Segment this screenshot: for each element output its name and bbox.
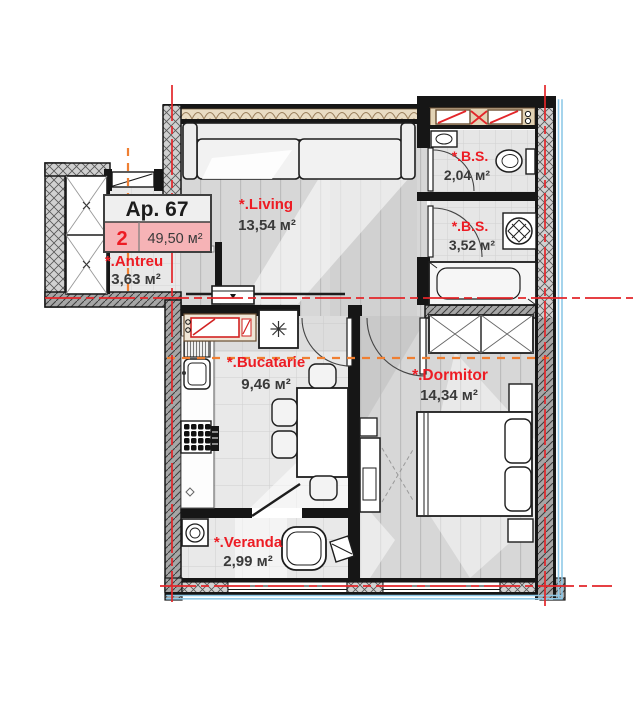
veranda-window (228, 582, 347, 593)
sofa (183, 123, 415, 179)
living-area-label: 13,54 м² (238, 217, 296, 234)
veranda-wall-a (181, 508, 252, 518)
bathroom2-door-leaf (428, 206, 433, 257)
apartment-number-label: Ap. 67 (125, 198, 188, 221)
dining-table (297, 388, 348, 477)
bathroom1-area-label: 2,04 м² (444, 167, 490, 183)
entry-jamb-right (154, 169, 163, 191)
apartment-label-box: Ap. 67 2 49,50 м² (104, 195, 211, 252)
vent-pipe-2 (525, 118, 530, 123)
vent-pipe-1 (525, 111, 530, 116)
bedroom-window (383, 582, 500, 593)
snowflake-icon (271, 321, 287, 337)
balcony-left-wall (45, 163, 65, 307)
bottom-wall-left-cap (165, 578, 182, 600)
laundry-basin (282, 527, 326, 570)
glazing-line-right (559, 100, 563, 598)
insulation-band (181, 109, 421, 120)
chair-left-2 (272, 431, 297, 458)
nightstand-top (509, 384, 532, 412)
living-name-label: *.Living (239, 196, 293, 213)
floor-plan-drawing: Ap. 67 2 49,50 м² *.Antreu 3,63 м² *.Liv… (0, 0, 635, 704)
bedroom-name-label: *.Dormitor (412, 367, 488, 384)
bathroom1-name-label: *.B.S. (452, 148, 489, 164)
veranda-name-label: *.Veranda (214, 534, 283, 551)
vent-band-bottom-line (430, 125, 535, 129)
total-area-label: 49,50 м² (147, 231, 202, 247)
fridge-icon (184, 341, 210, 357)
wardrobe-balcony (66, 176, 107, 294)
nightstand-bottom (508, 519, 533, 542)
bedroom-area-label: 14,34 м² (420, 387, 478, 404)
chair-bottom (310, 476, 337, 500)
tv-unit-top (360, 418, 377, 436)
kitchen-area-label: 9,46 м² (241, 376, 290, 393)
window-pier-2 (347, 582, 383, 593)
antreu-area-label: 3,63 м² (111, 271, 160, 288)
pillow-2 (505, 467, 531, 511)
pillow-1 (505, 419, 531, 463)
rooms-count-badge: 2 (116, 228, 127, 250)
right-wall-outer-line (553, 96, 556, 600)
kitchen-name-label: *.Bucatarie (227, 354, 305, 371)
bathroom2-area-label: 3,52 м² (449, 237, 495, 253)
bathroom1-door-leaf (428, 148, 433, 191)
bath-top-wall (417, 96, 555, 108)
bedroom-door-leaf (420, 318, 426, 374)
glazing-line-bottom (167, 596, 562, 599)
antreu-name-label: *.Antreu (105, 253, 163, 270)
window-pier-1 (182, 582, 228, 593)
bath-left-wall-a (417, 108, 430, 148)
balcony-top-wall (45, 163, 110, 176)
chair-top (309, 364, 336, 388)
veranda-wall-b (302, 508, 348, 518)
bath-divider-wall (417, 192, 535, 201)
chair-left-1 (272, 399, 297, 426)
floor-plan-canvas: Ap. 67 2 49,50 м² *.Antreu 3,63 м² *.Liv… (0, 0, 635, 704)
veranda-area-label: 2,99 м² (223, 553, 272, 570)
toilet-tank (526, 149, 535, 174)
left-exterior-wall (165, 300, 181, 592)
window-pier-3 (500, 582, 540, 593)
bathroom2-name-label: *.B.S. (452, 218, 489, 234)
